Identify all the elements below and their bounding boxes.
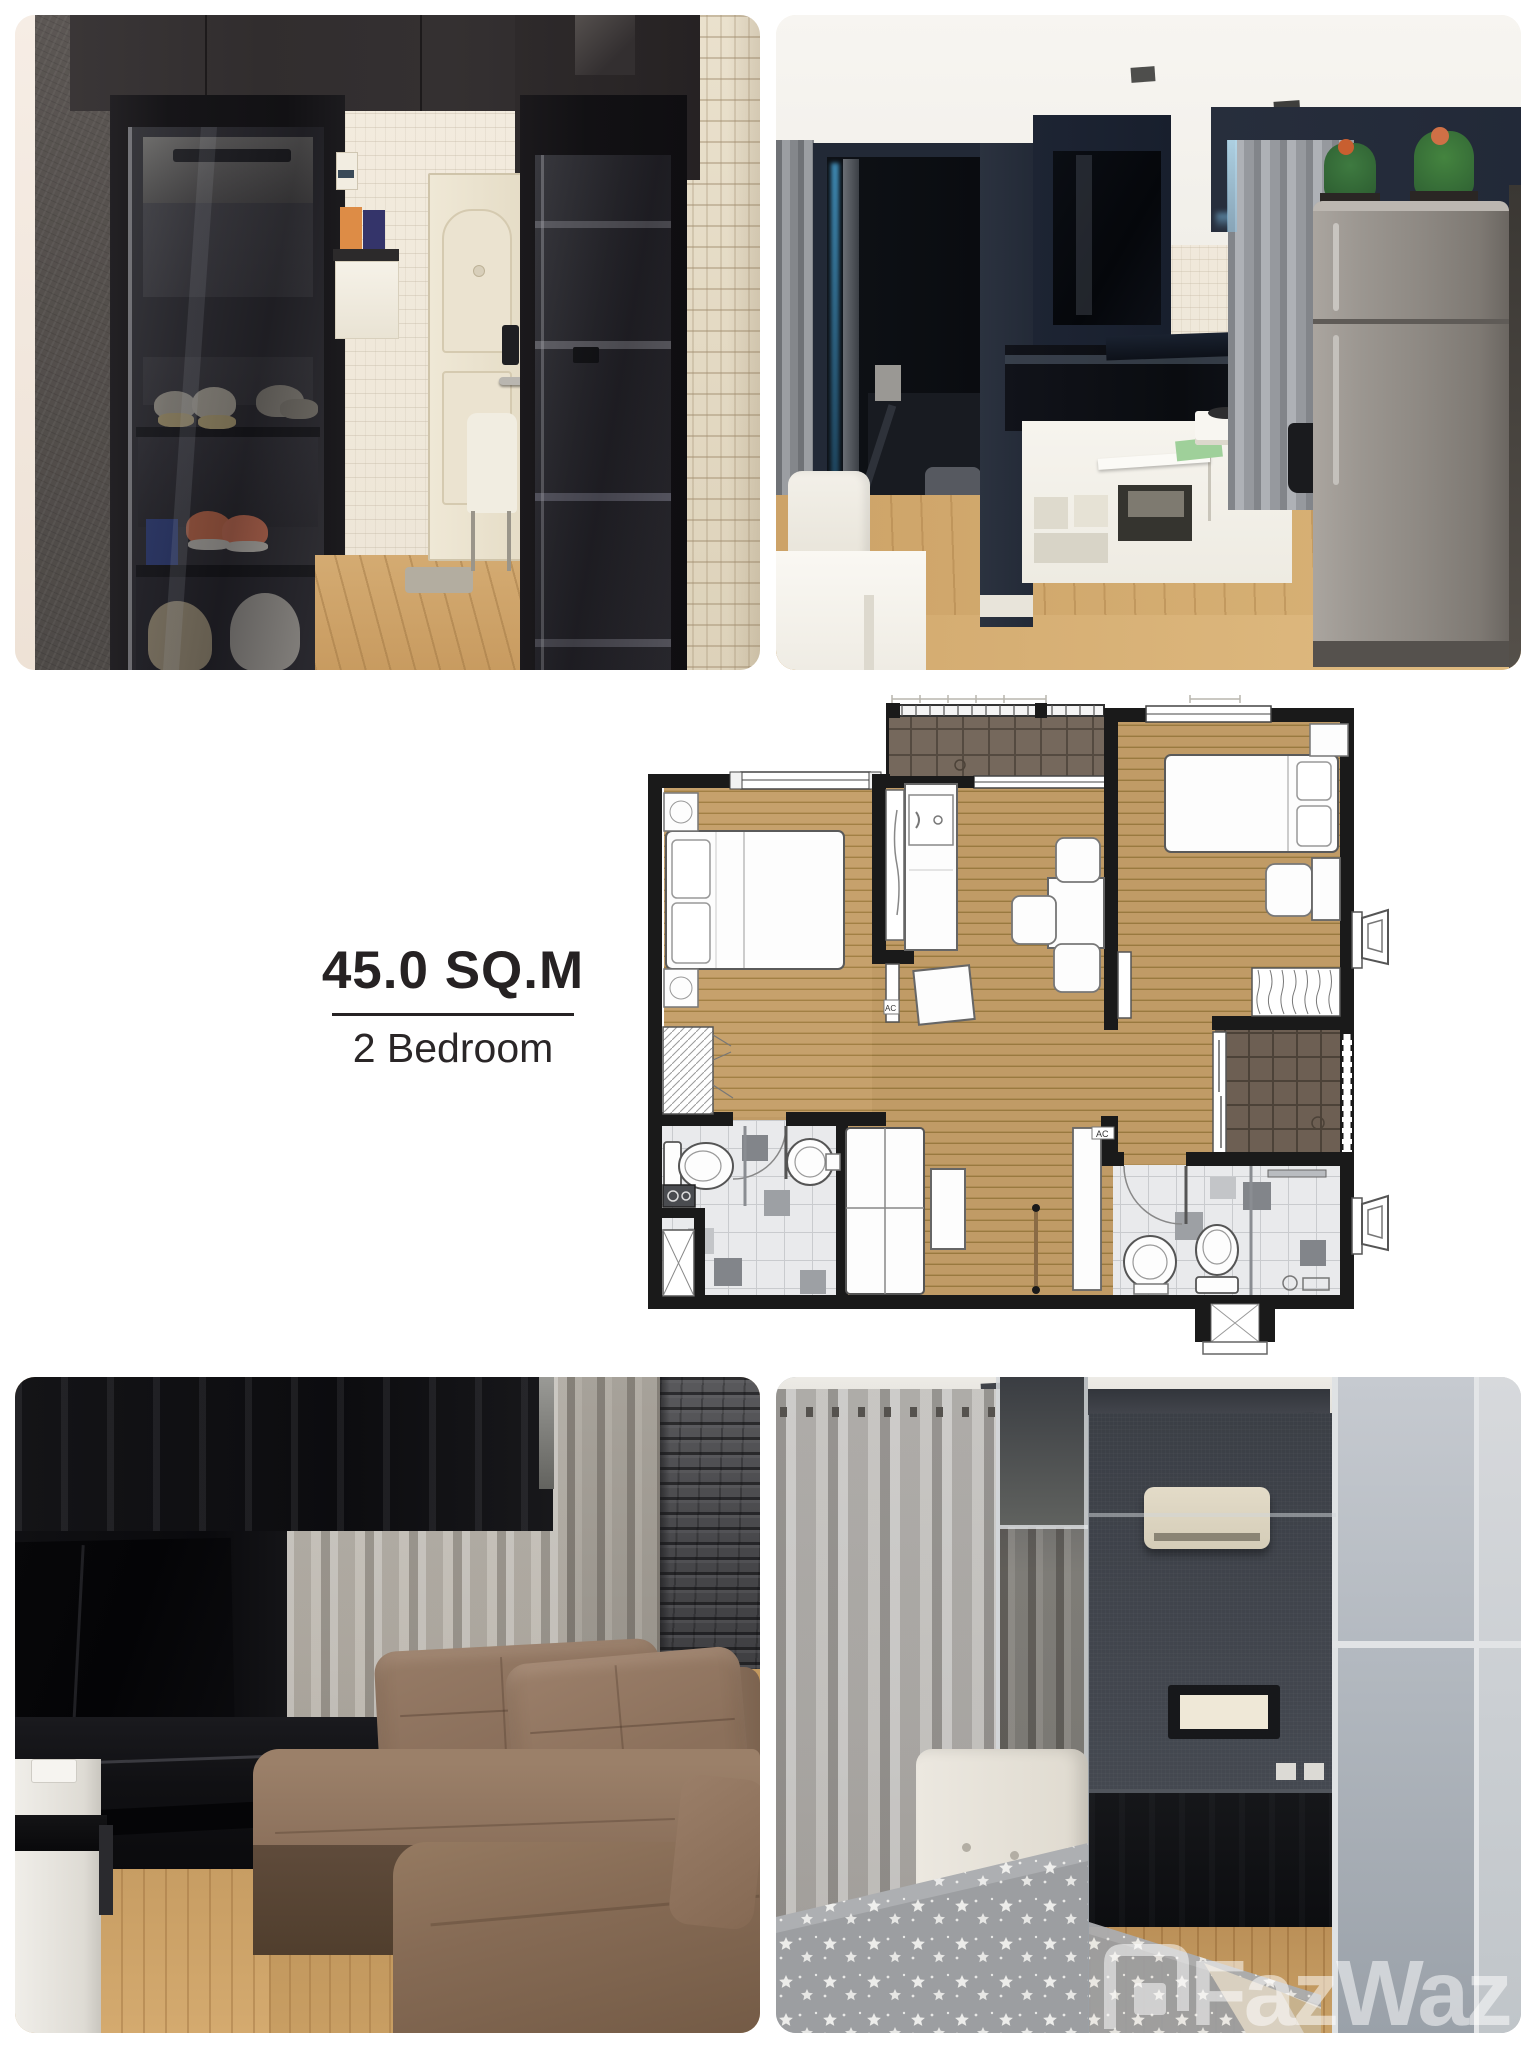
svg-text:FazWaz: FazWaz <box>1190 1943 1510 2033</box>
svg-text:AC: AC <box>1096 1129 1109 1139</box>
svg-text:AC: AC <box>885 1004 896 1013</box>
